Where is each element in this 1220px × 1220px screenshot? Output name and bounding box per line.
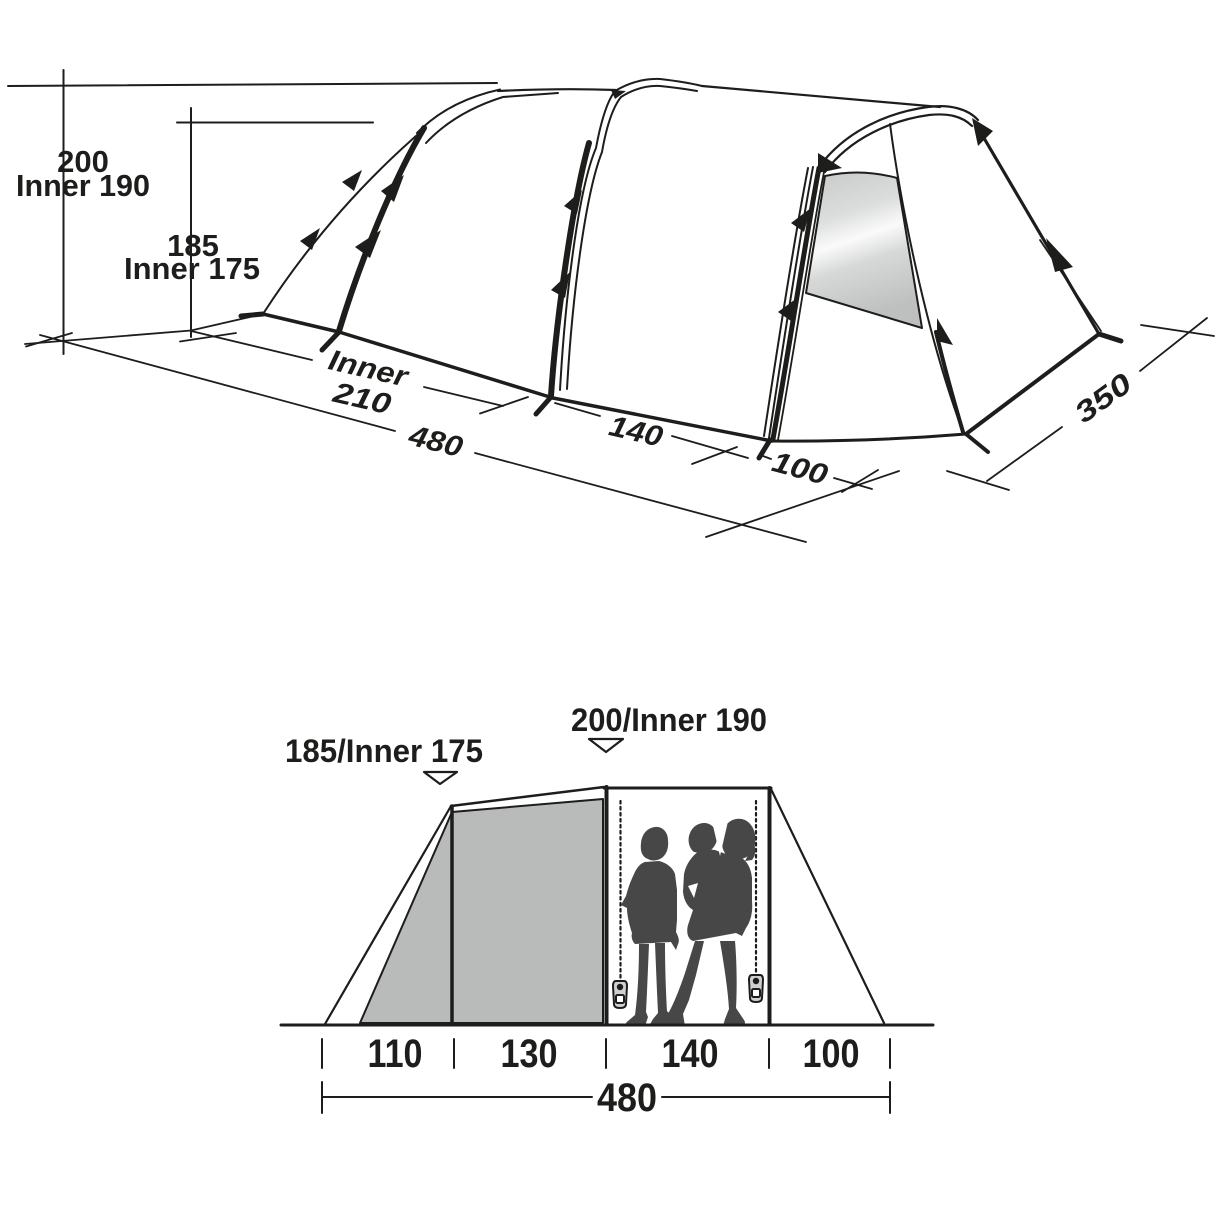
svg-text:Inner 175: Inner 175 <box>124 251 260 286</box>
svg-text:200/Inner 190: 200/Inner 190 <box>571 702 767 738</box>
svg-text:130: 130 <box>501 1032 558 1076</box>
svg-text:110: 110 <box>368 1032 423 1076</box>
svg-text:185/Inner 175: 185/Inner 175 <box>285 733 483 769</box>
svg-text:140: 140 <box>662 1032 719 1076</box>
svg-text:480: 480 <box>597 1076 657 1120</box>
svg-text:100: 100 <box>803 1032 860 1076</box>
svg-text:Inner 190: Inner 190 <box>16 168 150 203</box>
